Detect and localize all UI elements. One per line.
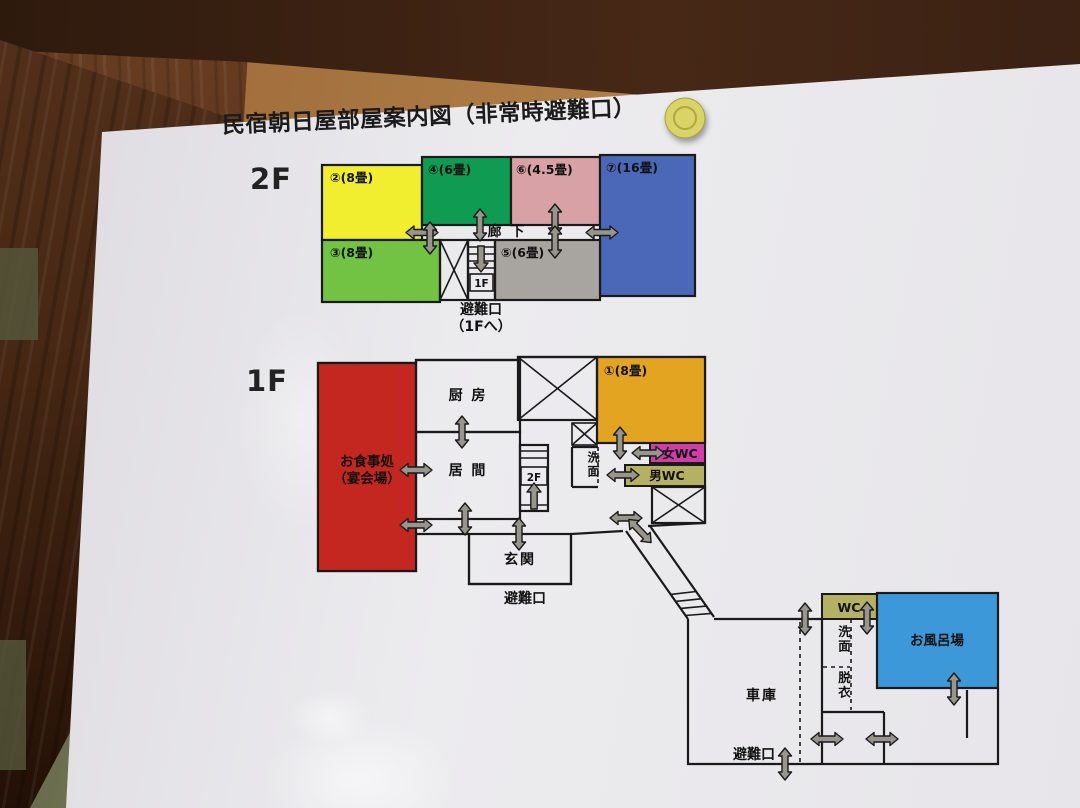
stair-label: 2F: [527, 472, 541, 484]
staircase-to-2f: 2F: [520, 445, 548, 511]
void-x-box-right: [652, 487, 705, 523]
exit-label-2f: 避難口: [460, 301, 502, 318]
floor1-label: 1F: [246, 364, 288, 398]
staircase-to-1f: 1F: [468, 240, 495, 300]
passage-arrow-icon: [811, 733, 843, 746]
pushpin: [662, 95, 708, 141]
room-3-label: ③(8畳): [330, 245, 373, 260]
room-washroom-main-label: 洗面: [577, 451, 599, 487]
room-annex-wc-label: WC: [838, 600, 861, 615]
room-2-label: ②(8畳): [330, 170, 373, 185]
exit-label-1f: 避難口: [504, 590, 546, 607]
exit-note-2f: （1Fへ）: [450, 319, 511, 335]
room-1-label: ①(8畳): [604, 363, 647, 378]
outdoor-corridor: [626, 526, 714, 619]
passage-arrow-icon: [607, 469, 639, 482]
room-dining-label1: お食事処: [340, 453, 394, 470]
passage-arrow-icon: [424, 222, 437, 254]
room-7: [600, 155, 695, 296]
moss-patch: [0, 640, 26, 770]
floor2-plan: 1F ②(8畳) ④(6畳) ⑥(4.5畳) ⑦(16畳) ③(8畳) ⑤(6畳…: [310, 148, 705, 348]
room-annex-dressing-label: 脱衣: [827, 671, 849, 713]
room-7-label: ⑦(16畳): [606, 160, 658, 175]
moss-patch: [0, 248, 38, 340]
room-entrance-label: 玄関: [504, 551, 536, 568]
room-6-label: ⑥(4.5畳): [516, 162, 573, 177]
room-annex-washroom-label: 洗面: [827, 625, 849, 667]
room-living-label: 居 間: [449, 463, 488, 479]
corridor-label: 廊 下: [488, 223, 527, 240]
floor1-plan: 2F お食事処 （宴会場） 厨 房 居 間 ①(8畳) 女WC 男WC 玄関 避…: [310, 350, 1025, 800]
void-x-box: [518, 357, 597, 420]
room-wc-men-label: 男WC: [649, 468, 684, 483]
room-wc-women-label: 女WC: [662, 446, 697, 461]
room-bath-label: お風呂場: [910, 632, 964, 649]
room-5-label: ⑤(6畳): [501, 245, 544, 260]
passage-arrow-icon: [632, 447, 664, 460]
void-x-box-small: [572, 423, 597, 445]
void-x-box: [440, 240, 468, 300]
room-dining-label2: （宴会場）: [333, 470, 401, 487]
room-kitchen-label: 厨 房: [449, 387, 488, 404]
exit-label-annex: 避難口: [733, 746, 775, 763]
stair-label: 1F: [474, 278, 488, 290]
floor2-label: 2F: [250, 162, 292, 196]
photo-scene: 民宿朝日屋部屋案内図（非常時避難口） 2F 1F: [0, 0, 1080, 808]
room-4-label: ④(6畳): [428, 162, 471, 177]
passage-arrow-icon: [866, 733, 898, 746]
room-garage-label: 車庫: [746, 687, 778, 704]
